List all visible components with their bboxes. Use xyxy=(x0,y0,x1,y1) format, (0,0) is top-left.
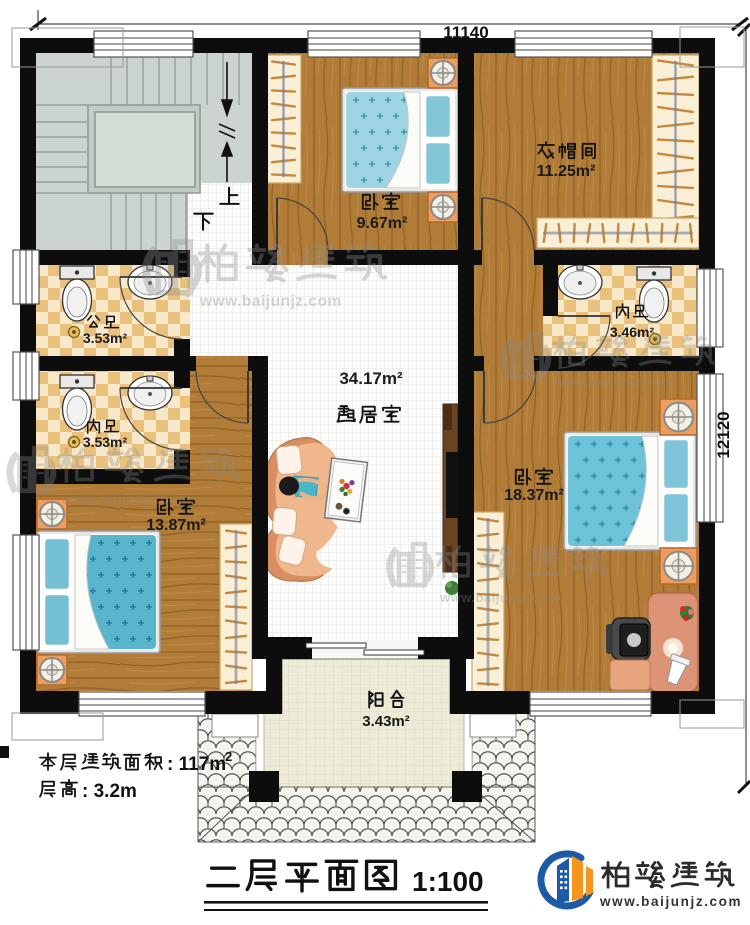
svg-text:1:100: 1:100 xyxy=(412,866,484,897)
svg-text:www.baijunjz.com: www.baijunjz.com xyxy=(61,491,191,507)
svg-text:3.53m²: 3.53m² xyxy=(83,434,128,450)
svg-text:www.baijunjz.com: www.baijunjz.com xyxy=(439,590,560,605)
svg-text:: 117m: : 117m xyxy=(167,754,226,775)
svg-text:12120: 12120 xyxy=(714,411,733,458)
svg-text:www.baijunjz.com: www.baijunjz.com xyxy=(553,374,674,389)
svg-text:9.67m²: 9.67m² xyxy=(357,215,408,232)
svg-text:18.37m²: 18.37m² xyxy=(504,487,564,504)
svg-text:13.87m²: 13.87m² xyxy=(146,517,206,534)
svg-text:www.baijunjz.com: www.baijunjz.com xyxy=(599,894,742,909)
svg-text:: 3.2m: : 3.2m xyxy=(82,781,137,802)
svg-text:3.53m²: 3.53m² xyxy=(83,330,128,346)
svg-text:3.43m²: 3.43m² xyxy=(362,713,410,730)
svg-text:11140: 11140 xyxy=(443,23,488,42)
svg-text:34.17m²: 34.17m² xyxy=(339,369,403,388)
svg-text:www.baijunjz.com: www.baijunjz.com xyxy=(199,293,342,310)
svg-text:2: 2 xyxy=(225,749,232,764)
svg-text:11.25m²: 11.25m² xyxy=(537,163,596,180)
